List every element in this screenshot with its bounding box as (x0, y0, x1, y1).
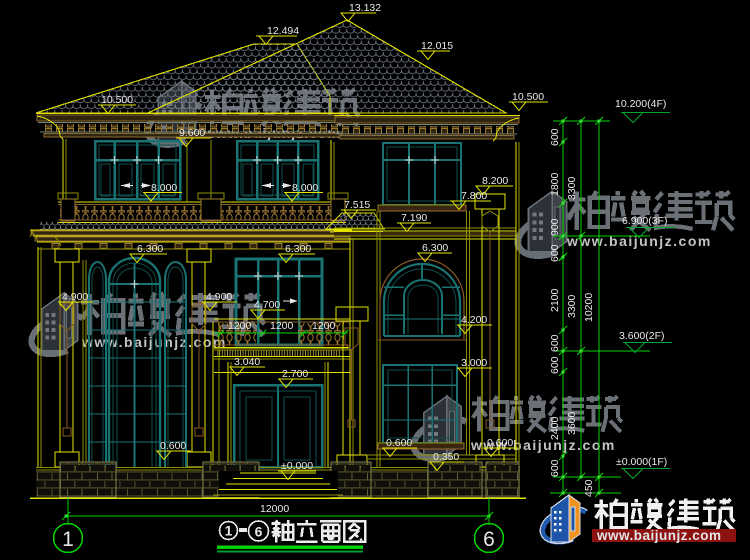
svg-text:600: 600 (549, 459, 561, 477)
svg-text:6.300: 6.300 (285, 243, 311, 255)
svg-text:0.350: 0.350 (433, 451, 459, 463)
svg-text:12.494: 12.494 (267, 25, 299, 37)
svg-text:1200: 1200 (228, 320, 252, 332)
svg-text:6: 6 (483, 528, 495, 551)
svg-text:6.900(3F): 6.900(3F) (622, 215, 668, 227)
svg-text:7.190: 7.190 (401, 212, 427, 224)
svg-text:1: 1 (225, 523, 233, 539)
svg-text:2100: 2100 (549, 288, 561, 312)
svg-text:4.900: 4.900 (62, 291, 88, 303)
svg-text:6: 6 (255, 524, 263, 540)
svg-text:900: 900 (549, 218, 561, 236)
svg-text:10.200(4F): 10.200(4F) (615, 98, 666, 110)
svg-text:1200: 1200 (312, 320, 336, 332)
svg-text:600: 600 (549, 128, 561, 146)
svg-text:0.600: 0.600 (487, 437, 513, 449)
svg-text:3300: 3300 (566, 176, 578, 200)
svg-text:2400: 2400 (549, 416, 561, 440)
svg-text:3.600(2F): 3.600(2F) (619, 330, 665, 342)
svg-text:1: 1 (62, 528, 74, 551)
svg-text:±0.000(1F): ±0.000(1F) (616, 456, 667, 468)
svg-text:±0.000: ±0.000 (281, 460, 313, 472)
svg-text:12.015: 12.015 (421, 40, 453, 52)
svg-text:0.600: 0.600 (386, 437, 412, 449)
svg-text:7.515: 7.515 (344, 199, 370, 211)
svg-text:1200: 1200 (270, 320, 294, 332)
svg-text:www.baijunjz.com: www.baijunjz.com (566, 233, 712, 249)
svg-text:12000: 12000 (260, 503, 289, 515)
svg-text:9.600: 9.600 (179, 127, 205, 139)
svg-text:1800: 1800 (549, 172, 561, 196)
svg-text:450: 450 (583, 479, 595, 497)
svg-text:4.700: 4.700 (254, 299, 280, 311)
svg-text:3.040: 3.040 (234, 356, 260, 368)
svg-text:www.baijunjz.com: www.baijunjz.com (596, 528, 722, 543)
svg-text:4.900: 4.900 (206, 291, 232, 303)
svg-text:13.132: 13.132 (349, 2, 381, 14)
svg-text:6.300: 6.300 (422, 242, 448, 254)
svg-text:2.700: 2.700 (282, 368, 308, 380)
svg-text:3.000: 3.000 (461, 357, 487, 369)
svg-text:4.200: 4.200 (461, 314, 487, 326)
svg-text:8.200: 8.200 (482, 175, 508, 187)
svg-text:600: 600 (549, 334, 561, 352)
svg-text:600: 600 (549, 244, 561, 262)
svg-text:6.300: 6.300 (137, 243, 163, 255)
svg-text:3300: 3300 (566, 294, 578, 318)
svg-text:3600: 3600 (566, 411, 578, 435)
svg-text:10.500: 10.500 (101, 94, 133, 106)
svg-text:0.600: 0.600 (160, 440, 186, 452)
svg-text:7.800: 7.800 (461, 190, 487, 202)
svg-text:10200: 10200 (583, 293, 595, 322)
svg-text:600: 600 (549, 356, 561, 374)
svg-text:10.500: 10.500 (512, 91, 544, 103)
